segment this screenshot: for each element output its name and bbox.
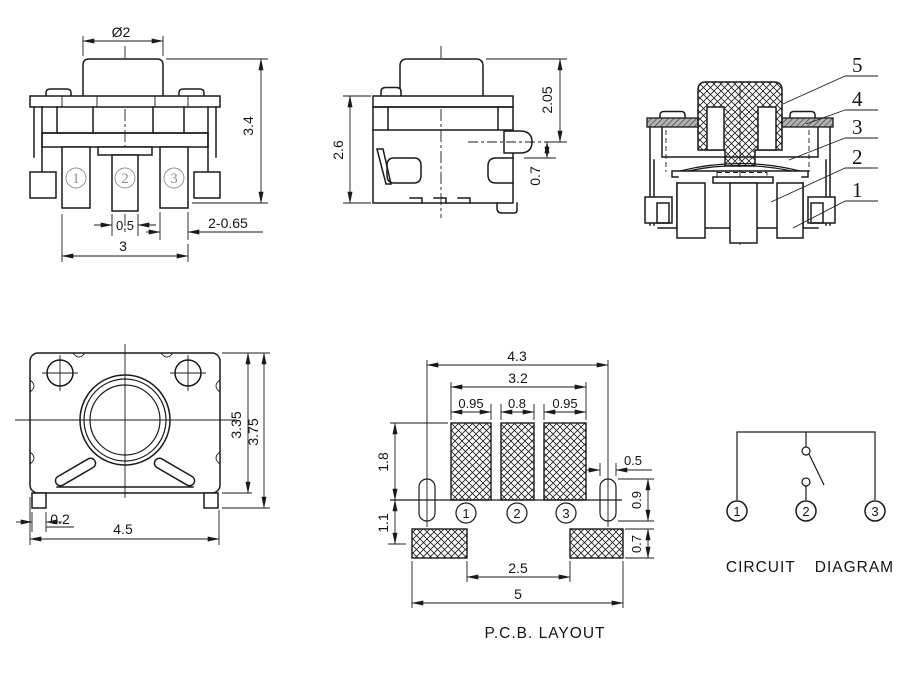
pcb-gap-label: 2.5	[508, 560, 528, 576]
side-upper-label: 2.05	[539, 86, 555, 113]
section-cover-bump-left	[660, 112, 685, 119]
circuit-terminal-3: 3	[871, 504, 878, 519]
section-leg-2	[730, 183, 757, 243]
section-callout-5: 5	[852, 53, 863, 77]
pcb-padh-label: 0.7	[629, 535, 644, 553]
bottom-foot-right	[204, 493, 218, 508]
front-right-bump	[179, 89, 204, 96]
front-pinw-label: 0.5	[116, 218, 134, 233]
section-center-plate	[713, 177, 773, 183]
section-callout-1: 1	[852, 178, 863, 202]
pcb-terminal-1: 1	[462, 506, 469, 521]
pcb-sloth-label: 0.9	[629, 491, 644, 509]
section-callout-4: 4	[852, 87, 863, 111]
section-button-slot-right	[758, 107, 776, 150]
pcb-pad-1	[451, 423, 491, 500]
front-center-tab	[98, 147, 152, 155]
pcb-h1-label: 1.8	[375, 452, 391, 472]
bottom-width-label: 4.5	[113, 521, 133, 537]
section-cover-bump-right	[790, 112, 815, 119]
pcb-bottom-pad-left	[412, 529, 467, 558]
circuit-caption: CIRCUIT DIAGRAM	[726, 559, 894, 576]
pcb-p2-label: 0.8	[508, 396, 526, 411]
pcb-slotw-label: 0.5	[624, 453, 642, 468]
front-pinnote-label: 2-0.65	[208, 215, 248, 231]
section-left-bracket	[645, 197, 672, 223]
pcb-pad-2	[501, 423, 534, 500]
front-left-bump	[46, 89, 71, 96]
circuit-terminal-2: 2	[802, 504, 809, 519]
bottom-foot-label: 0.2	[50, 511, 70, 527]
side-flange	[373, 96, 513, 107]
front-terminal-2: 2	[121, 171, 129, 187]
side-bump	[381, 88, 401, 97]
front-height-label: 3.4	[240, 116, 256, 136]
pcb-pad-3	[544, 423, 586, 500]
section-cover-left	[647, 118, 698, 127]
bottom-innerh-label: 3.35	[228, 411, 244, 438]
drawing-sheet: 1 2 3 Ø2 3.4 0.5 2-0.65 3	[0, 0, 900, 673]
section-right-bracket	[808, 197, 835, 223]
front-terminal-3: 3	[170, 171, 178, 187]
front-top-flange	[30, 96, 220, 107]
side-button	[400, 59, 483, 96]
pcb-bottom-pad-right	[570, 529, 623, 558]
pcb-terminal-2: 2	[513, 506, 520, 521]
pcb-w1-label: 4.3	[507, 348, 527, 364]
side-pin-label: 0.7	[527, 166, 543, 186]
pcb-terminal-3: 3	[562, 506, 569, 521]
front-terminal-1: 1	[72, 171, 80, 187]
section-button-slot-left	[707, 107, 724, 150]
section-callout-2: 2	[852, 145, 863, 169]
front-span-label: 3	[119, 238, 127, 254]
circuit-terminal-1: 1	[733, 504, 740, 519]
pcb-h2-label: 1.1	[375, 513, 391, 533]
pcb-p1-label: 0.95	[458, 396, 483, 411]
pcb-w3-label: 5	[514, 586, 522, 602]
pcb-caption: P.C.B. LAYOUT	[485, 625, 606, 642]
section-leg-1	[677, 183, 705, 238]
bottom-foot-left	[32, 493, 46, 508]
drawing-svg: 1 2 3 Ø2 3.4 0.5 2-0.65 3	[0, 0, 900, 673]
front-button	[83, 59, 163, 96]
side-height-label: 2.6	[330, 140, 346, 160]
section-cover-right	[782, 118, 833, 127]
front-dia-label: Ø2	[112, 24, 131, 40]
section-leg-3	[777, 183, 803, 238]
pcb-w2-label: 3.2	[508, 370, 528, 386]
bottom-outerh-label: 3.75	[245, 418, 261, 445]
pcb-p3-label: 0.95	[552, 396, 577, 411]
section-callout-3: 3	[852, 115, 863, 139]
